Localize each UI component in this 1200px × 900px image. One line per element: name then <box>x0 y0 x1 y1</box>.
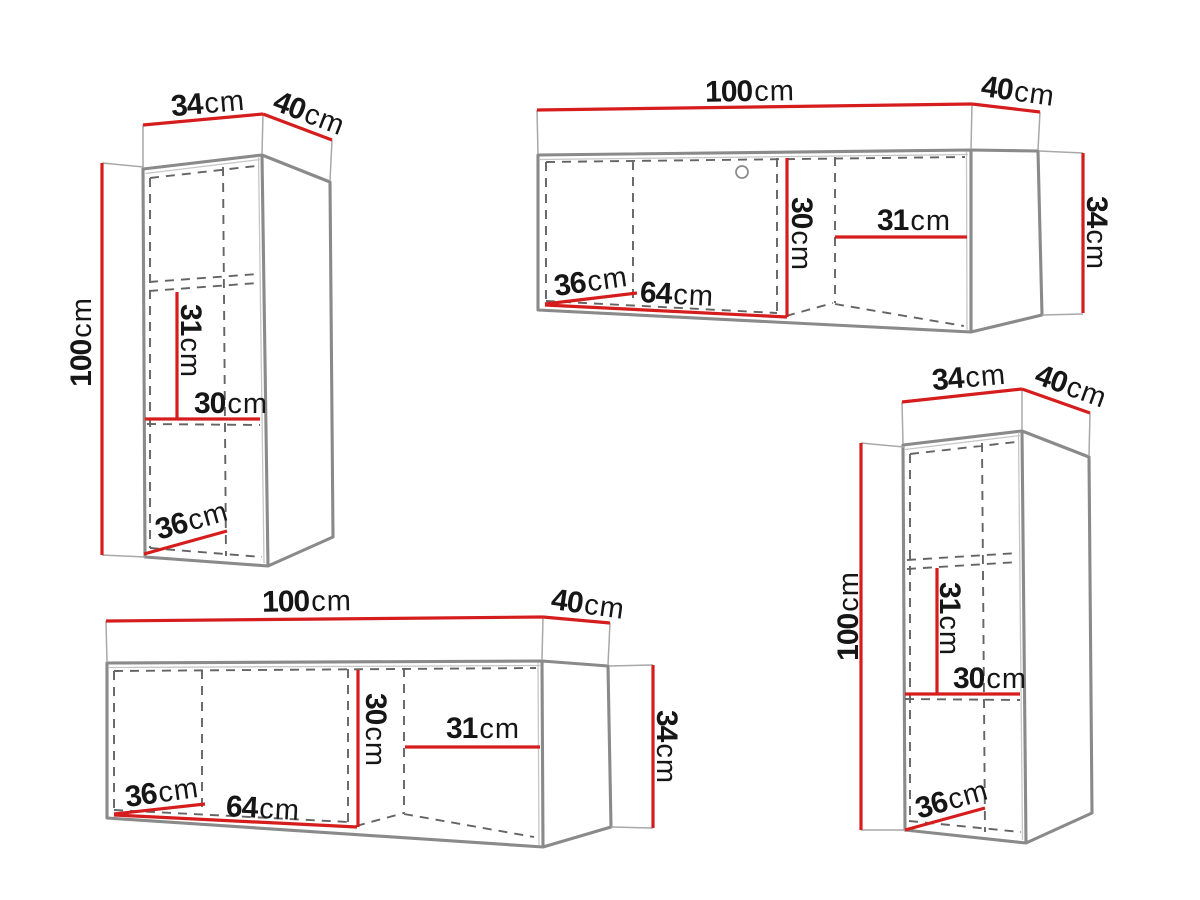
top-right-inner-height-label: 30cm <box>786 197 816 271</box>
width-value: 100 <box>262 585 310 619</box>
section-width-unit: cm <box>910 205 951 237</box>
shelf-spacing-value: 31 <box>933 582 966 613</box>
width-unit: cm <box>203 85 246 120</box>
width-value: 100 <box>705 75 753 109</box>
height-value: 100 <box>832 614 865 661</box>
height-value: 34 <box>1080 196 1113 227</box>
inner-width-unit: cm <box>986 663 1027 695</box>
width-value: 34 <box>931 362 965 398</box>
section-length-value: 64 <box>639 276 672 311</box>
bottom-left-section-length-label: 64cm <box>225 792 301 826</box>
section-width-unit: cm <box>479 713 520 745</box>
cabinet-diagrams-svg <box>0 0 1200 900</box>
shelf-spacing-unit: cm <box>174 337 206 378</box>
bottom-depth-unit: cm <box>156 772 201 809</box>
bottom-left-inner-height-label: 30cm <box>360 693 390 767</box>
top-right-height-label: 34cm <box>1081 196 1111 270</box>
bottom-left-width-label: 100cm <box>262 586 352 618</box>
top-left-shelf-spacing-label: 31cm <box>175 304 205 378</box>
width-unit: cm <box>754 75 795 108</box>
top-right-width-label: 100cm <box>705 76 795 108</box>
inner-height-unit: cm <box>785 230 817 271</box>
top-right-section-width-label: 31cm <box>877 206 951 236</box>
section-length-unit: cm <box>259 793 301 827</box>
inner-width-value: 30 <box>194 387 225 420</box>
bottom-left-height-label: 34cm <box>651 710 681 784</box>
cabinet-body-outline <box>143 155 333 566</box>
section-length-value: 64 <box>225 790 258 825</box>
height-unit: cm <box>650 743 682 784</box>
cam-hole-mark <box>736 166 748 178</box>
width-unit: cm <box>311 585 352 618</box>
bottom-right-shelf-spacing-label: 31cm <box>934 582 964 656</box>
inner-height-value: 30 <box>359 693 392 724</box>
depth-value: 40 <box>549 583 585 620</box>
shelf-spacing-value: 31 <box>174 304 207 335</box>
height-value: 34 <box>650 710 683 741</box>
depth-unit: cm <box>582 589 627 626</box>
tall-cabinet-bottom-right-drawing <box>861 389 1092 843</box>
extension-lines <box>102 114 332 557</box>
bottom-left-section-width-label: 31cm <box>446 714 520 744</box>
top-left-height-label: 100cm <box>67 297 97 387</box>
inner-height-unit: cm <box>359 726 391 767</box>
shelf-spacing-unit: cm <box>933 615 965 656</box>
hidden-edges-dashed <box>546 157 965 326</box>
width-unit: cm <box>964 359 1007 394</box>
inner-height-value: 30 <box>785 197 818 228</box>
section-width-value: 31 <box>446 712 477 745</box>
panel-thickness-lines <box>540 152 968 331</box>
hidden-edges-dashed <box>114 668 536 837</box>
section-width-value: 31 <box>877 204 908 237</box>
cabinet-body-outline <box>903 431 1092 843</box>
height-unit: cm <box>1080 229 1112 270</box>
bottom-depth-value: 36 <box>123 777 159 814</box>
height-unit: cm <box>66 297 98 338</box>
bottom-right-height-label: 100cm <box>834 571 864 661</box>
width-value: 34 <box>170 88 204 124</box>
dimension-diagram-page: 34cm 40cm 100cm 31cm 30cm 36cm 100cm 40c… <box>0 0 1200 900</box>
depth-value: 40 <box>979 70 1015 107</box>
bottom-depth-value: 36 <box>552 266 588 303</box>
inner-width-value: 30 <box>953 662 984 695</box>
bottom-depth-unit: cm <box>585 261 630 298</box>
top-left-width-label: 34cm <box>170 86 246 122</box>
height-value: 100 <box>65 340 98 387</box>
height-unit: cm <box>833 571 865 612</box>
depth-unit: cm <box>1012 76 1057 113</box>
top-right-section-length-label: 64cm <box>639 278 715 312</box>
inner-width-unit: cm <box>227 388 268 420</box>
bottom-right-width-label: 34cm <box>931 360 1007 396</box>
top-left-inner-width-label: 30cm <box>194 389 268 419</box>
extension-lines <box>861 389 1090 830</box>
bottom-right-inner-width-label: 30cm <box>953 664 1027 694</box>
section-length-unit: cm <box>673 279 715 313</box>
